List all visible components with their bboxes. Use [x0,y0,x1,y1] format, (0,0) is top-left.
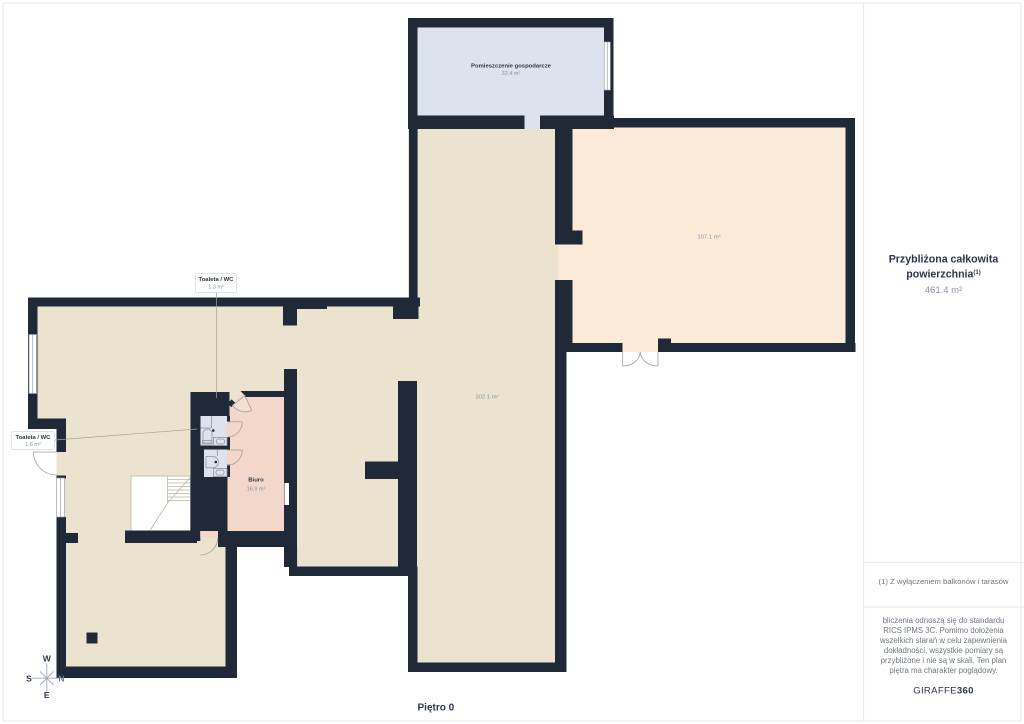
svg-text:16.9 m²: 16.9 m² [247,487,266,493]
svg-text:Przybliżona całkowita: Przybliżona całkowita [889,254,999,266]
svg-text:107.1 m²: 107.1 m² [697,235,720,241]
svg-text:461.4 m²: 461.4 m² [925,285,963,296]
svg-text:32.4 m²: 32.4 m² [502,71,521,77]
svg-text:przybliżone i nie są w skali.: przybliżone i nie są w skali. Ten plan [881,656,1007,665]
svg-text:Toaleta / WC: Toaleta / WC [16,435,52,441]
svg-text:Toaleta / WC: Toaleta / WC [199,277,235,283]
svg-text:bliczenia odnoszą się do stand: bliczenia odnoszą się do standardu [883,616,1005,625]
svg-text:Pomieszczenie gospodarcze: Pomieszczenie gospodarcze [471,64,552,70]
svg-text:RICS IPMS 3C. Pomimo dołożenia: RICS IPMS 3C. Pomimo dołożenia [883,626,1004,635]
svg-text:Piętro 0: Piętro 0 [418,703,455,714]
svg-text:E: E [44,690,50,700]
svg-text:GIRAFFE360: GIRAFFE360 [913,686,974,697]
svg-text:powierzchnia(1): powierzchnia(1) [906,269,980,281]
svg-text:dokładności, wszystkie pomiary: dokładności, wszystkie pomiary są [884,646,1004,655]
svg-text:1.6 m²: 1.6 m² [25,442,41,448]
svg-text:wszelkich starań w celu zapewn: wszelkich starań w celu zapewnienia [879,636,1008,645]
svg-text:302.1 m²: 302.1 m² [475,395,498,401]
svg-text:1.3 m²: 1.3 m² [208,285,224,291]
svg-text:(1) Z wyłączeniem balkonów i t: (1) Z wyłączeniem balkonów i tarasów [879,577,1009,586]
svg-text:S: S [26,674,32,684]
svg-text:W: W [43,654,52,664]
svg-text:piętra ma charakter poglądowy.: piętra ma charakter poglądowy. [889,666,997,675]
svg-text:N: N [58,674,64,684]
svg-text:Biuro: Biuro [248,478,264,484]
